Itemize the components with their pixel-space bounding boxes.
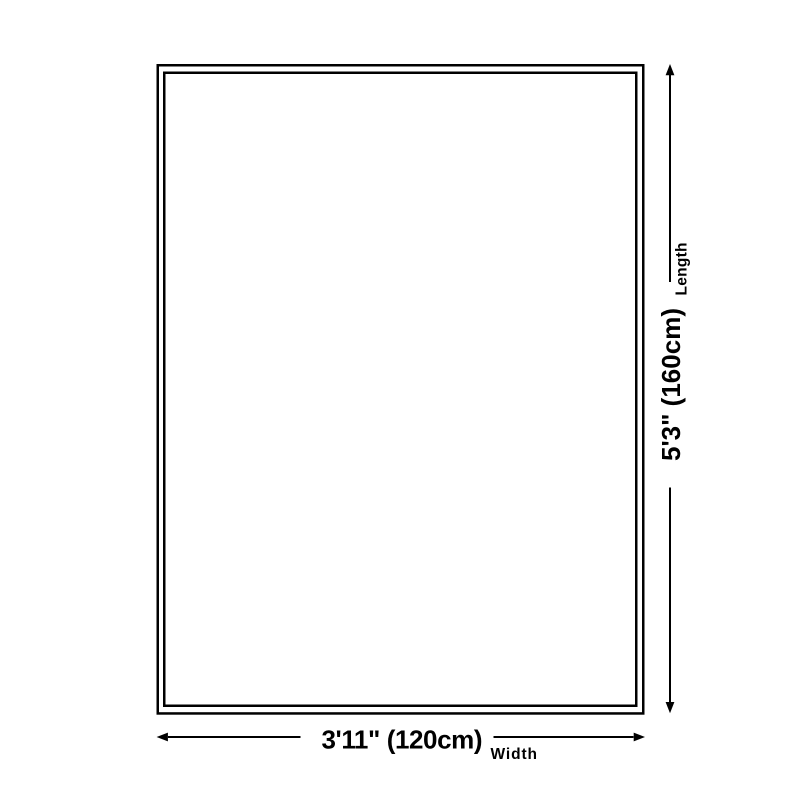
svg-text:3'11" (120cm): 3'11" (120cm) — [322, 725, 483, 755]
svg-text:Width: Width — [491, 746, 538, 763]
svg-text:5'3" (160cm): 5'3" (160cm) — [656, 308, 686, 461]
svg-text:Length: Length — [674, 243, 691, 296]
